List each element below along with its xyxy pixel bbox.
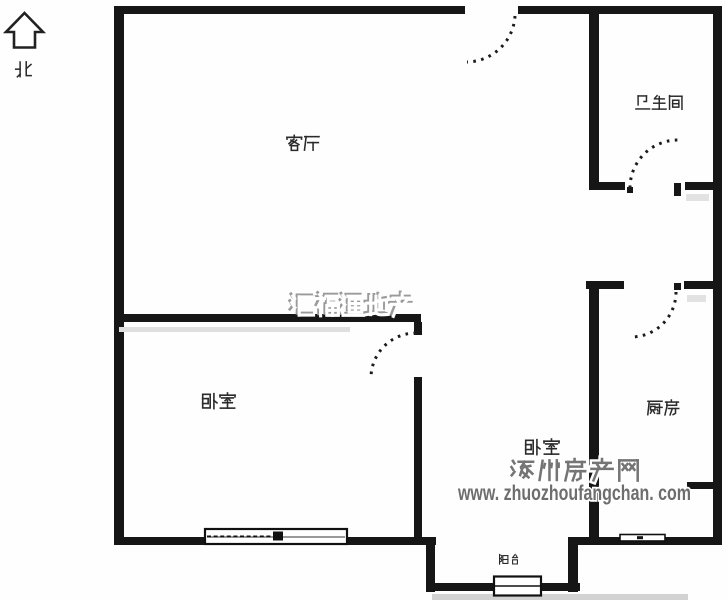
svg-text:www. zhuozhoufangchan. com: www. zhuozhoufangchan. com — [457, 482, 691, 505]
